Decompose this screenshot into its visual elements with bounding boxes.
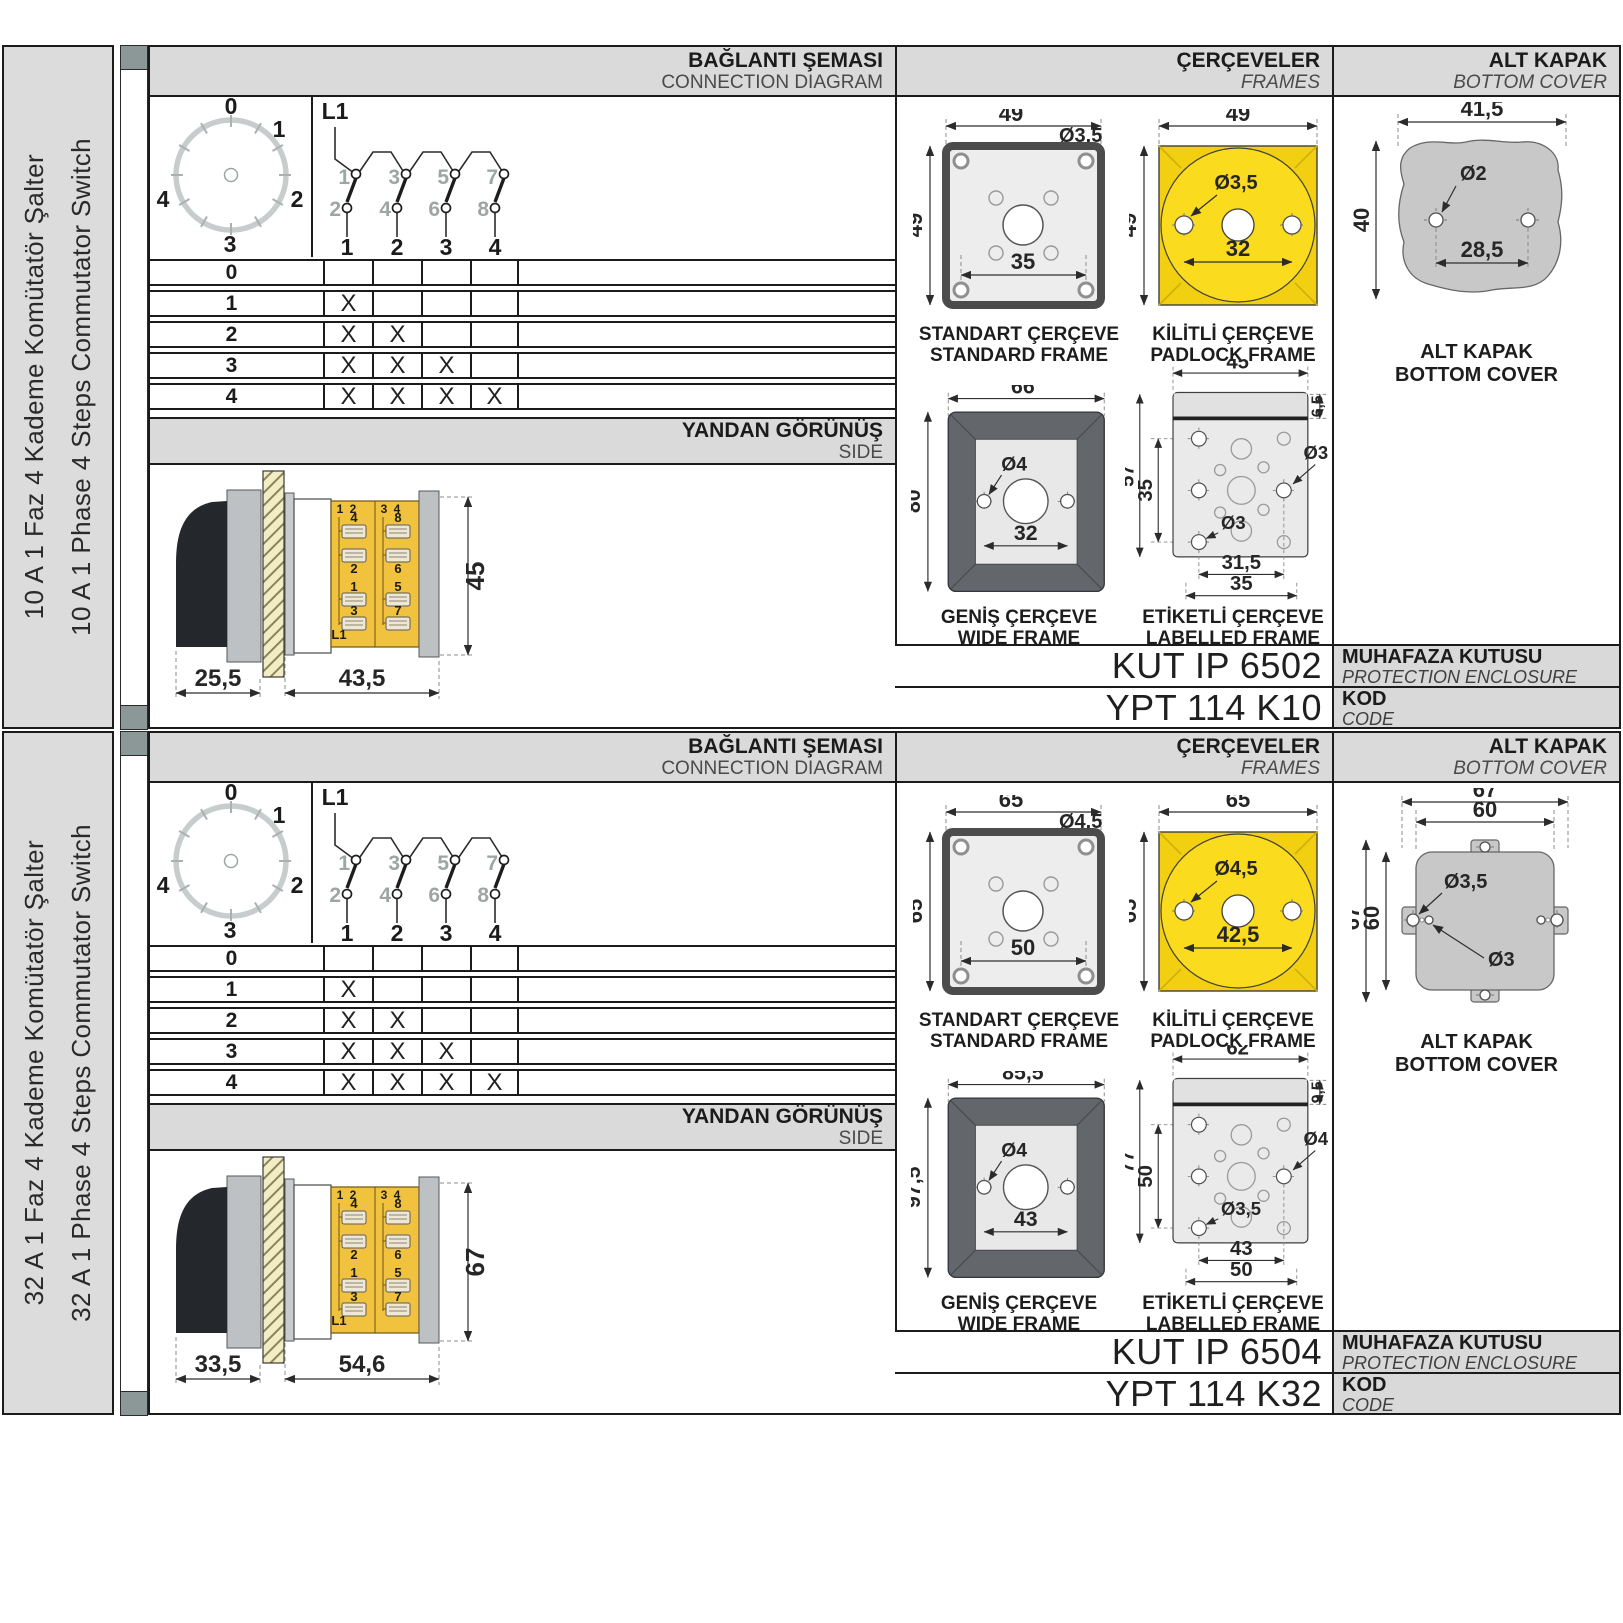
code-label-tr: KOD: [1342, 1375, 1619, 1396]
mark-cell: [470, 947, 519, 970]
dial-pos-2: 2: [291, 186, 304, 212]
labelled-frame-caption: ETİKETLİ ÇERÇEVE LABELLED FRAME: [1135, 1293, 1331, 1335]
pole-label-3: 3: [381, 1188, 388, 1202]
connection-panel: BAĞLANTI ŞEMASI CONNECTION DIAGRAM 0: [150, 733, 895, 1413]
labelled-frame-drawing: 62 9,5 77 50: [1125, 1045, 1330, 1293]
cover-title-en: BOTTOM COVER: [1453, 72, 1607, 93]
side-view-svg: 1 2 3 4 4 2 1 3 8 6 5 7 L1: [150, 465, 895, 727]
dial-pos-0: 0: [225, 97, 238, 119]
wide-spacing: 32: [1014, 521, 1038, 545]
pad-dim-height: 49: [1129, 213, 1141, 237]
terminal-label: 8: [394, 1196, 401, 1211]
enclosure-label-en: PROTECTION ENCLOSURE: [1342, 668, 1619, 687]
switch-schematic-svg: L1: [313, 783, 895, 943]
mark-cell: X: [323, 292, 372, 315]
mark-cell: X: [323, 1009, 372, 1032]
mark-cell: X: [372, 354, 421, 377]
output-2: 2: [391, 920, 404, 943]
output-1: 1: [341, 234, 354, 257]
caption-tr: KİLİTLİ ÇERÇEVE: [1135, 1010, 1331, 1031]
switch-body: [294, 499, 331, 653]
mark-cell: [323, 947, 372, 970]
dim-body: 43,5: [339, 665, 386, 692]
terminal-label: 2: [350, 1247, 357, 1262]
switch-table-row: 2 X X: [150, 321, 895, 348]
shaft-hole: [1003, 891, 1043, 931]
caption-tr: STANDART ÇERÇEVE: [905, 324, 1133, 345]
label-band: [1174, 393, 1307, 418]
output-4: 4: [489, 920, 502, 943]
end-plate: [419, 491, 439, 657]
row-label: 0: [150, 947, 313, 970]
side-title-tr: YANDAN GÖRÜNÜŞ: [682, 1105, 883, 1128]
mark-cell: X: [372, 323, 421, 346]
mark-cell: X: [323, 1040, 372, 1063]
terminal-label: 6: [394, 561, 401, 576]
dial-pos-4: 4: [157, 872, 170, 898]
front-plate: [285, 493, 294, 655]
switch-table-row: 4 X X X X: [150, 383, 895, 410]
standard-frame-caption: STANDART ÇERÇEVE STANDARD FRAME: [905, 1010, 1133, 1052]
mark-cell: [421, 978, 470, 1001]
cov-hole-big: Ø3,5: [1444, 871, 1487, 893]
caption-tr: ETİKETLİ ÇERÇEVE: [1135, 607, 1331, 628]
padlock-frame-drawing: 49 49 Ø3,5 32: [1129, 109, 1334, 324]
side-view-svg: 1 2 3 4 4 2 1 3 8 6 5 7 L1: [150, 1151, 895, 1413]
contact-4: 4: [379, 884, 391, 907]
mark-cell: [470, 261, 519, 284]
dial-pos-1: 1: [273, 802, 286, 828]
cov-hole-dia: Ø2: [1460, 163, 1487, 185]
line-input-label: L1: [322, 784, 349, 810]
cov-dim-width: 41,5: [1461, 102, 1504, 121]
line-input-label: L1: [322, 98, 349, 124]
enclosure-label-tr: MUHAFAZA KUTUSU: [1342, 1333, 1619, 1354]
strip-cap-top: [120, 731, 148, 756]
std-dim-height: 49: [913, 213, 927, 237]
lab-dim-label-h: 6,5: [1310, 395, 1327, 417]
input-label: L1: [331, 627, 346, 642]
product-section-10a: 10 A 1 Faz 4 Kademe Komütatör Şalter 10 …: [2, 45, 1621, 729]
enclosure-row: KUT IP 6504 MUHAFAZA KUTUSU PROTECTION E…: [895, 1332, 1619, 1374]
switch-table-row: 1 X: [150, 976, 895, 1003]
frames-title-tr: ÇERÇEVELER: [1176, 49, 1320, 72]
cover-title-en: BOTTOM COVER: [1453, 758, 1607, 779]
wide-spacing: 43: [1014, 1207, 1038, 1231]
mark-cell: X: [421, 385, 470, 408]
terminal-label: 3: [350, 1289, 357, 1304]
dim-body: 54,6: [339, 1351, 386, 1378]
dial-pos-0: 0: [225, 783, 238, 805]
mark-cell: [470, 323, 519, 346]
pad-spacing: 32: [1226, 236, 1250, 261]
bottom-cover-drawing: 67 60 67 60: [1352, 788, 1602, 1028]
rotary-dial-box: 0 1 2 3 4: [150, 783, 313, 943]
end-plate: [419, 1177, 439, 1343]
contact-8: 8: [477, 198, 489, 221]
enclosure-code: KUT IP 6502: [895, 646, 1332, 686]
lab-spacing-a: 31,5: [1222, 552, 1262, 574]
output-3: 3: [440, 920, 453, 943]
panel-plate-hatched: [263, 1157, 284, 1363]
shaft-hole: [1003, 479, 1048, 524]
mark-cell: X: [421, 1040, 470, 1063]
wide-frame-drawing: 85,5 97,5 Ø4 43: [911, 1071, 1126, 1289]
pole-label-1: 1: [337, 1188, 344, 1202]
mark-cell: X: [470, 1071, 519, 1094]
pad-dim-width: 49: [1226, 109, 1250, 126]
std-spacing: 50: [1011, 935, 1035, 960]
connection-header: BAĞLANTI ŞEMASI CONNECTION DIAGRAM: [150, 733, 895, 783]
caption-en: BOTTOM COVER: [1334, 364, 1619, 387]
mark-cell: X: [372, 1040, 421, 1063]
mark-cell: X: [323, 354, 372, 377]
terminal-label: 1: [350, 1265, 357, 1280]
pole-label-1: 1: [337, 502, 344, 516]
contact-1: 1: [338, 166, 350, 189]
row-label: 0: [150, 261, 313, 284]
output-4: 4: [489, 234, 502, 257]
switch-table-row: 3 X X X: [150, 1038, 895, 1065]
connection-panel: BAĞLANTI ŞEMASI CONNECTION DIAGRAM 0: [150, 47, 895, 727]
frames-header: ÇERÇEVELER FRAMES: [897, 733, 1332, 783]
contact-8: 8: [477, 884, 489, 907]
wide-dim-height: 80: [911, 489, 925, 513]
code-row: YPT 114 K10 KOD CODE: [895, 688, 1619, 727]
switch-handle: [176, 501, 227, 647]
cov-hole-small: Ø3: [1488, 949, 1515, 971]
wide-dim-width: 66: [1011, 385, 1035, 399]
mark-cell: X: [372, 385, 421, 408]
mark-cell: [323, 261, 372, 284]
mark-cell: [470, 1009, 519, 1032]
lab-hole-b: Ø3: [1221, 512, 1246, 533]
wide-dim-height: 97,5: [911, 1166, 925, 1208]
switch-schematic: L1: [313, 97, 895, 257]
standard-frame-drawing: 65 Ø4,5 65 50: [913, 795, 1118, 1010]
standard-frame-caption: STANDART ÇERÇEVE STANDARD FRAME: [905, 324, 1133, 366]
pad-hole-dia: Ø3,5: [1214, 172, 1257, 194]
shaft-hole: [1003, 1165, 1048, 1210]
terminal-label: 7: [394, 603, 401, 618]
panel-plate-hatched: [263, 471, 284, 677]
side-view-header: YANDAN GÖRÜNÜŞ SIDE: [150, 417, 895, 465]
std-dim-width: 65: [999, 795, 1023, 812]
cover-header: ALT KAPAK BOTTOM COVER: [1334, 47, 1619, 97]
mark-cell: [372, 292, 421, 315]
shaft-hole: [1003, 205, 1043, 245]
wide-dim-width: 85,5: [1002, 1071, 1044, 1085]
codes-block: KUT IP 6502 MUHAFAZA KUTUSU PROTECTION E…: [895, 644, 1619, 727]
row-label: 1: [150, 978, 313, 1001]
mark-cell: [372, 978, 421, 1001]
caption-tr: KİLİTLİ ÇERÇEVE: [1135, 324, 1331, 345]
terminal-label: 4: [350, 1196, 358, 1211]
front-plate: [285, 1179, 294, 1341]
mark-cell: X: [421, 1071, 470, 1094]
enclosure-row: KUT IP 6502 MUHAFAZA KUTUSU PROTECTION E…: [895, 646, 1619, 688]
cover-title-tr: ALT KAPAK: [1489, 735, 1607, 758]
switch-table-row: 0: [150, 945, 895, 972]
cov-dim-h-inner: 60: [1359, 906, 1384, 930]
lab-hole-b: Ø3,5: [1221, 1198, 1261, 1219]
caption-tr: GENİŞ ÇERÇEVE: [905, 607, 1133, 628]
product-sidebar: 32 A 1 Faz 4 Kademe Komütatör Şalter 32 …: [2, 731, 114, 1415]
datasheet-main: BAĞLANTI ŞEMASI CONNECTION DIAGRAM 0: [148, 731, 1621, 1415]
bottom-cover-drawing: 41,5 40 Ø2 28,5: [1352, 102, 1602, 337]
caption-tr: ETİKETLİ ÇERÇEVE: [1135, 1293, 1331, 1314]
mark-cell: [372, 261, 421, 284]
pad-dim-width: 65: [1226, 795, 1250, 812]
mark-cell: [421, 292, 470, 315]
switch-table-row: 2 X X: [150, 1007, 895, 1034]
mark-cell: X: [323, 323, 372, 346]
standard-frame-drawing: 49 Ø3,5 49 35: [913, 109, 1118, 324]
dim-height: 45: [460, 562, 490, 591]
code-label-en: CODE: [1342, 1396, 1619, 1415]
output-3: 3: [440, 234, 453, 257]
row-label: 2: [150, 1009, 313, 1032]
frames-header: ÇERÇEVELER FRAMES: [897, 47, 1332, 97]
switch-schematic-svg: L1: [313, 97, 895, 257]
cover-title-tr: ALT KAPAK: [1489, 49, 1607, 72]
mount-bezel: [227, 490, 261, 662]
strip-cap-bottom: [120, 705, 148, 730]
row-label: 3: [150, 354, 313, 377]
mark-cell: X: [372, 1071, 421, 1094]
code-label: KOD CODE: [1332, 1374, 1619, 1413]
side-view-header: YANDAN GÖRÜNÜŞ SIDE: [150, 1103, 895, 1151]
lab-spacing-b: 35: [1230, 573, 1253, 595]
dim-front: 33,5: [195, 1351, 242, 1378]
caption-en: STANDARD FRAME: [905, 345, 1133, 366]
lab-dim-inner-h: 50: [1135, 1165, 1157, 1188]
mark-cell: X: [372, 1009, 421, 1032]
dial-pos-3: 3: [224, 231, 237, 255]
side-view-drawing: 1 2 3 4 4 2 1 3 8 6 5 7 L1: [150, 465, 895, 727]
frames-title-tr: ÇERÇEVELER: [1176, 735, 1320, 758]
caption-en: STANDARD FRAME: [905, 1031, 1133, 1052]
frames-title-en: FRAMES: [1241, 72, 1320, 93]
mark-cell: X: [323, 1071, 372, 1094]
lab-spacing-a: 43: [1230, 1238, 1253, 1260]
switch-table-row: 3 X X X: [150, 352, 895, 379]
mark-cell: [421, 1009, 470, 1032]
cov-dim-w-inner: 60: [1473, 797, 1497, 822]
caption-tr: STANDART ÇERÇEVE: [905, 1010, 1133, 1031]
mark-cell: [421, 323, 470, 346]
wide-frame-drawing: 66 80 Ø4 32: [911, 385, 1126, 603]
enclosure-label: MUHAFAZA KUTUSU PROTECTION ENCLOSURE: [1332, 646, 1619, 686]
wide-frame-caption: GENİŞ ÇERÇEVE WIDE FRAME: [905, 607, 1133, 649]
mark-cell: [372, 947, 421, 970]
product-section-32a: 32 A 1 Faz 4 Kademe Komütatör Şalter 32 …: [2, 731, 1621, 1415]
switch-handle: [176, 1187, 227, 1333]
contact-5: 5: [437, 166, 449, 189]
labelled-frame-caption: ETİKETLİ ÇERÇEVE LABELLED FRAME: [1135, 607, 1331, 649]
contact-2: 2: [329, 884, 341, 907]
strip-cap-top: [120, 45, 148, 70]
contact-4: 4: [379, 198, 391, 221]
code-label: KOD CODE: [1332, 688, 1619, 727]
side-title-tr: YANDAN GÖRÜNÜŞ: [682, 419, 883, 442]
pad-spacing: 42,5: [1217, 922, 1260, 947]
enclosure-label: MUHAFAZA KUTUSU PROTECTION ENCLOSURE: [1332, 1332, 1619, 1372]
mark-cell: X: [323, 385, 372, 408]
std-dim-height: 65: [913, 899, 927, 923]
dial-pos-3: 3: [224, 917, 237, 941]
label-band: [1174, 1079, 1307, 1104]
product-title-english: 32 A 1 Phase 4 Steps Commutator Switch: [66, 824, 97, 1322]
contact-3: 3: [388, 852, 400, 875]
mark-cell: [470, 354, 519, 377]
caption-tr: ALT KAPAK: [1334, 1031, 1619, 1054]
lab-hole-a: Ø4: [1304, 1128, 1329, 1149]
switch-body: [294, 1185, 331, 1339]
terminal-label: 5: [394, 579, 401, 594]
input-label: L1: [331, 1313, 346, 1328]
terminal-label: 5: [394, 1265, 401, 1280]
side-title-en: SIDE: [839, 442, 883, 463]
frames-panel: ÇERÇEVELER FRAMES 49 Ø3,5 49 35: [895, 47, 1332, 727]
terminal-label: 2: [350, 561, 357, 576]
mark-cell: [470, 292, 519, 315]
terminal-label: 1: [350, 579, 357, 594]
rotary-dial-diagram: 0 1 2 3 4: [150, 97, 311, 255]
code-row: YPT 114 K32 KOD CODE: [895, 1374, 1619, 1413]
std-spacing: 35: [1011, 249, 1035, 274]
caption-tr: GENİŞ ÇERÇEVE: [905, 1293, 1133, 1314]
dial-pos-4: 4: [157, 186, 170, 212]
binding-strip: [120, 45, 148, 729]
product-title-turkish: 10 A 1 Faz 4 Kademe Komütatör Şalter: [19, 154, 50, 619]
terminal-label: 4: [350, 510, 358, 525]
lab-dim-width: 45: [1226, 359, 1249, 373]
contact-5: 5: [437, 852, 449, 875]
dial-pos-1: 1: [273, 116, 286, 142]
switch-table-row: 0: [150, 259, 895, 286]
switch-table-row: 1 X: [150, 290, 895, 317]
mark-cell: X: [323, 978, 372, 1001]
frames-title-en: FRAMES: [1241, 758, 1320, 779]
side-title-en: SIDE: [839, 1128, 883, 1149]
contact-6: 6: [428, 884, 440, 907]
rotary-dial-diagram: 0 1 2 3 4: [150, 783, 311, 941]
lab-hole-a: Ø3: [1304, 442, 1329, 463]
terminal-label: 8: [394, 510, 401, 525]
dial-pos-2: 2: [291, 872, 304, 898]
contact-6: 6: [428, 198, 440, 221]
cover-header: ALT KAPAK BOTTOM COVER: [1334, 733, 1619, 783]
std-dim-width: 49: [999, 109, 1023, 126]
product-code: YPT 114 K32: [895, 1374, 1332, 1413]
output-1: 1: [341, 920, 354, 943]
row-label: 1: [150, 292, 313, 315]
strip-cap-bottom: [120, 1391, 148, 1416]
cover-caption: ALT KAPAK BOTTOM COVER: [1334, 1031, 1619, 1077]
wide-hole-dia: Ø4: [1001, 453, 1027, 475]
mark-cell: [421, 947, 470, 970]
contact-7: 7: [486, 852, 498, 875]
connection-header: BAĞLANTI ŞEMASI CONNECTION DIAGRAM: [150, 47, 895, 97]
frames-panel: ÇERÇEVELER FRAMES 65 Ø4,5 65 50: [895, 733, 1332, 1413]
padlock-frame-drawing: 65 65 Ø4,5 42,5: [1129, 795, 1334, 1010]
connection-title-tr: BAĞLANTI ŞEMASI: [688, 735, 883, 758]
product-title-turkish: 32 A 1 Faz 4 Kademe Komütatör Şalter: [19, 840, 50, 1305]
row-label: 3: [150, 1040, 313, 1063]
rotary-dial-box: 0 1 2 3 4: [150, 97, 313, 257]
pole-label-3: 3: [381, 502, 388, 516]
dim-front: 25,5: [195, 665, 242, 692]
contact-7: 7: [486, 166, 498, 189]
lab-spacing-b: 50: [1230, 1259, 1253, 1281]
labelled-frame-drawing: 45 6,5 57 35: [1125, 359, 1330, 607]
cov-dim-height: 40: [1352, 208, 1374, 232]
mark-cell: [470, 978, 519, 1001]
code-label-en: CODE: [1342, 710, 1619, 729]
cov-spacing: 28,5: [1461, 237, 1504, 262]
side-view-drawing: 1 2 3 4 4 2 1 3 8 6 5 7 L1: [150, 1151, 895, 1413]
connection-title-tr: BAĞLANTI ŞEMASI: [688, 49, 883, 72]
product-code: YPT 114 K10: [895, 688, 1332, 727]
mark-cell: X: [421, 354, 470, 377]
datasheet-main: BAĞLANTI ŞEMASI CONNECTION DIAGRAM 0: [148, 45, 1621, 729]
switch-table-row: 4 X X X X: [150, 1069, 895, 1096]
row-label: 4: [150, 385, 313, 408]
connection-title-en: CONNECTION DIAGRAM: [661, 72, 883, 93]
binding-strip: [120, 731, 148, 1415]
enclosure-label-tr: MUHAFAZA KUTUSU: [1342, 647, 1619, 668]
code-label-tr: KOD: [1342, 689, 1619, 710]
lab-dim-width: 62: [1226, 1045, 1249, 1059]
product-title-english: 10 A 1 Phase 4 Steps Commutator Switch: [66, 138, 97, 636]
connection-title-en: CONNECTION DIAGRAM: [661, 758, 883, 779]
terminal-label: 3: [350, 603, 357, 618]
caption-en: BOTTOM COVER: [1334, 1054, 1619, 1077]
pad-dim-height: 65: [1129, 899, 1141, 923]
row-label: 2: [150, 323, 313, 346]
mark-cell: X: [470, 385, 519, 408]
terminal-label: 6: [394, 1247, 401, 1262]
mount-bezel: [227, 1176, 261, 1348]
cover-panel: ALT KAPAK BOTTOM COVER 67 60 67 60: [1332, 733, 1619, 1413]
contact-2: 2: [329, 198, 341, 221]
wide-hole-dia: Ø4: [1001, 1139, 1027, 1161]
switch-schematic: L1: [313, 783, 895, 943]
contact-3: 3: [388, 166, 400, 189]
codes-block: KUT IP 6504 MUHAFAZA KUTUSU PROTECTION E…: [895, 1330, 1619, 1413]
product-sidebar: 10 A 1 Faz 4 Kademe Komütatör Şalter 10 …: [2, 45, 114, 729]
lab-dim-label-h: 9,5: [1310, 1081, 1327, 1103]
pad-hole-dia: Ø4,5: [1214, 858, 1257, 880]
enclosure-code: KUT IP 6504: [895, 1332, 1332, 1372]
caption-tr: ALT KAPAK: [1334, 341, 1619, 364]
lab-dim-inner-h: 35: [1135, 479, 1157, 502]
mark-cell: [470, 1040, 519, 1063]
dim-height: 67: [460, 1248, 490, 1277]
row-label: 4: [150, 1071, 313, 1094]
wide-frame-caption: GENİŞ ÇERÇEVE WIDE FRAME: [905, 1293, 1133, 1335]
contact-1: 1: [338, 852, 350, 875]
enclosure-label-en: PROTECTION ENCLOSURE: [1342, 1354, 1619, 1373]
cover-caption: ALT KAPAK BOTTOM COVER: [1334, 341, 1619, 387]
cover-panel: ALT KAPAK BOTTOM COVER 41,5 40 Ø2 28,5: [1332, 47, 1619, 727]
output-2: 2: [391, 234, 404, 257]
terminal-label: 7: [394, 1289, 401, 1304]
mark-cell: [421, 261, 470, 284]
